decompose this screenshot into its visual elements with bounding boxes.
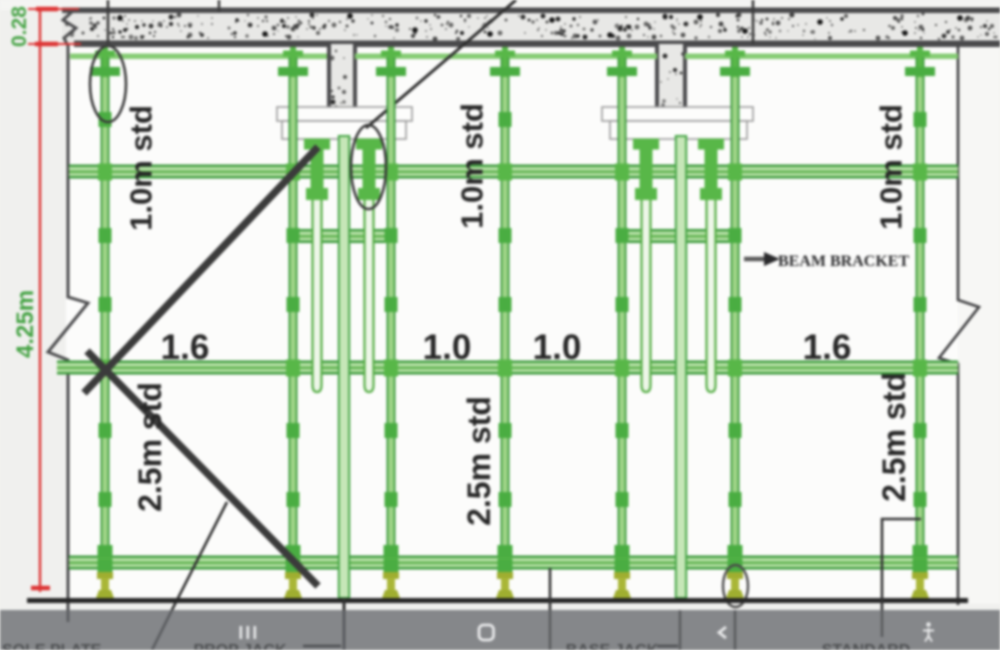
svg-text:1.0: 1.0 — [533, 328, 582, 367]
svg-text:1.0m std: 1.0m std — [455, 103, 490, 229]
svg-text:1.0m std: 1.0m std — [124, 105, 159, 231]
svg-text:1.6: 1.6 — [803, 328, 852, 367]
svg-text:2.5m std: 2.5m std — [461, 396, 497, 526]
svg-text:BEAM BRACKET: BEAM BRACKET — [778, 253, 909, 270]
svg-text:1.6: 1.6 — [161, 328, 210, 367]
svg-text:1.0m std: 1.0m std — [874, 104, 909, 230]
svg-text:SOLE PLATE: SOLE PLATE — [2, 642, 102, 650]
svg-text:PROP JACK: PROP JACK — [193, 642, 287, 650]
svg-text:1.0: 1.0 — [423, 328, 472, 367]
svg-text:STANDARD: STANDARD — [822, 642, 911, 650]
svg-text:4.25m: 4.25m — [12, 290, 39, 358]
svg-text:BASE JACK: BASE JACK — [566, 642, 659, 650]
svg-text:2.5m std: 2.5m std — [876, 372, 912, 502]
svg-text:2.5m std: 2.5m std — [132, 382, 168, 512]
svg-text:0.28: 0.28 — [8, 6, 31, 47]
